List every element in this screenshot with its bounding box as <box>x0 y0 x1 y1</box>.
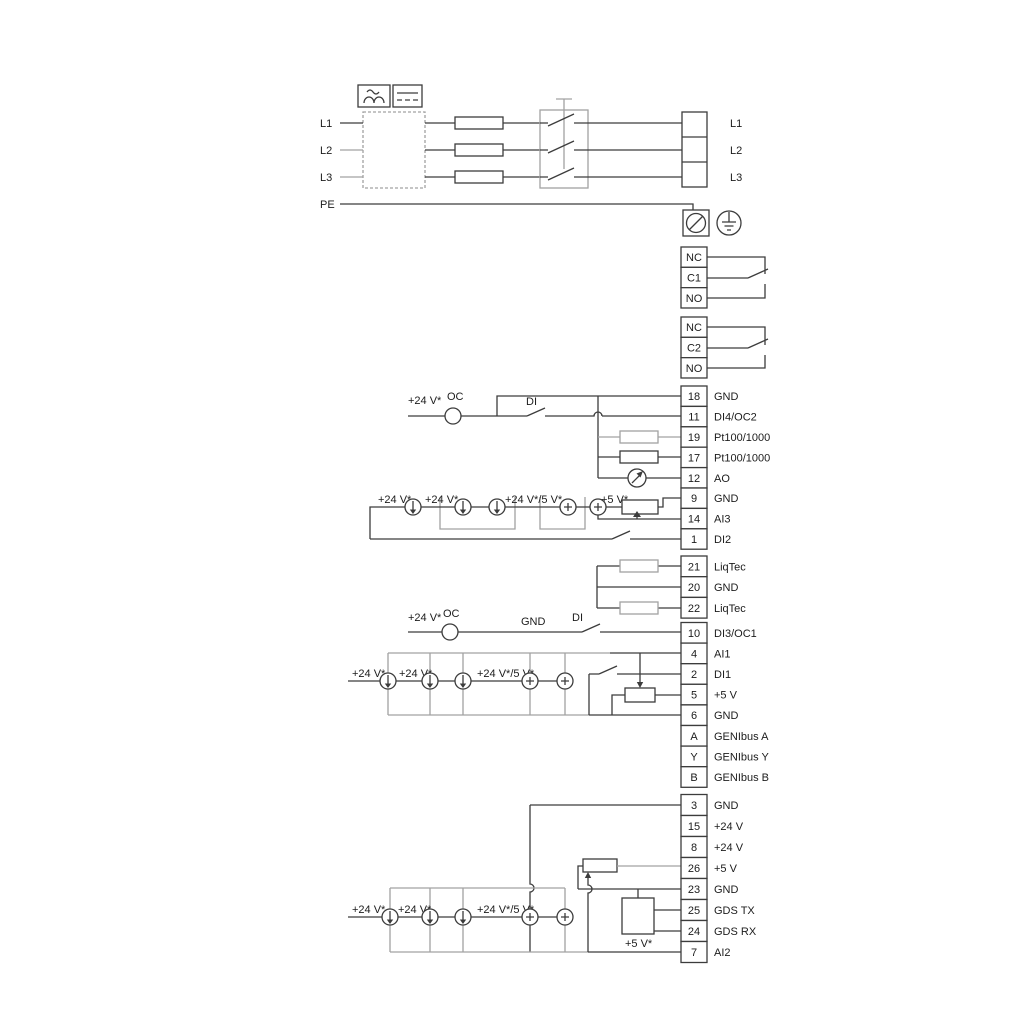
terminal-14: 14AI3 <box>681 508 731 528</box>
current-source-icon <box>422 909 438 925</box>
terminal-15-label: +24 V <box>714 821 744 833</box>
power-section: L1 L2 L3 PE <box>320 85 742 236</box>
terminal-19-label: Pt100/1000 <box>714 432 770 444</box>
terminal-2: 2DI1 <box>681 664 731 685</box>
ground-icon <box>717 211 741 235</box>
current-source-icon <box>405 499 421 515</box>
terminal-10: 10DI3/OC1 <box>681 623 757 644</box>
open-collector-label: OC <box>447 391 464 403</box>
terminal-21-label: LiqTec <box>714 561 746 573</box>
terminal-23: 23GND <box>681 879 739 900</box>
terminal-18: 18GND <box>681 386 739 406</box>
io-terminal-block-3: 3GND15+24 V8+24 V26+5 V23GND25GDS TX24GD… <box>681 795 757 963</box>
terminal-19-number: 19 <box>688 432 700 444</box>
main-disconnect-switch <box>540 99 588 188</box>
plus24v-label: +24 V* <box>425 494 459 506</box>
io-terminal-block-2: 10DI3/OC14AI12DI15+5 V6GNDAGENIbus AYGEN… <box>681 623 769 788</box>
terminal-NC: NC <box>681 247 707 267</box>
terminal-18-label: GND <box>714 391 739 403</box>
terminal-A: AGENIbus A <box>681 726 769 747</box>
terminal-17: 17Pt100/1000 <box>681 447 770 467</box>
terminal-23-label: GND <box>714 884 739 896</box>
terminal-14-number: 14 <box>688 514 700 526</box>
terminal-A-label: GENIbus A <box>714 731 769 743</box>
voltage-source-icon <box>560 499 576 515</box>
plus5v-label: +5 V* <box>625 938 653 950</box>
voltage-source-icon <box>590 499 606 515</box>
io3-wiring: +24 V* +24 V* +24 V*/5 V* +5 V* <box>348 805 681 952</box>
terminal-15-number: 15 <box>688 821 700 833</box>
terminal-23-number: 23 <box>688 884 700 896</box>
phase-l1-out-label: L1 <box>730 118 742 130</box>
terminal-18-number: 18 <box>688 391 700 403</box>
terminal-12-number: 12 <box>688 473 700 485</box>
mains-output-terminal-block: L1 L2 L3 <box>682 112 742 187</box>
terminal-NO-number: NO <box>686 363 703 375</box>
terminal-3-number: 3 <box>691 800 697 812</box>
terminal-11-label: DI4/OC2 <box>714 412 757 424</box>
wiper-arrow-icon <box>585 872 591 878</box>
relay1-terminal-block: NCC1NO <box>681 247 707 308</box>
io2-wiring: +24 V* OC GND DI +24 V* +24 V* +24 V*/5 … <box>348 608 681 715</box>
terminal-7-number: 7 <box>691 947 697 959</box>
terminal-10-label: DI3/OC1 <box>714 628 757 640</box>
phase-l1-in-label: L1 <box>320 118 332 130</box>
terminal-21: 21LiqTec <box>681 556 746 577</box>
rcd-dc-icon <box>393 85 422 107</box>
current-source-icon <box>489 499 505 515</box>
terminal-2-label: DI1 <box>714 669 731 681</box>
terminal-2-number: 2 <box>691 669 697 681</box>
terminal-B: BGENIbus B <box>681 767 769 788</box>
current-source-icon <box>455 673 471 689</box>
terminal-9-label: GND <box>714 493 739 505</box>
io-terminal-block-1: 18GND11DI4/OC219Pt100/100017Pt100/100012… <box>681 386 770 549</box>
pe-terminal-icon <box>683 210 709 236</box>
terminal-6-label: GND <box>714 710 739 722</box>
terminal-C1-number: C1 <box>687 272 701 284</box>
wiring-diagram-page: L1 L2 L3 PE <box>0 0 1024 1024</box>
digital-input-label: DI <box>572 612 583 624</box>
terminal-17-label: Pt100/1000 <box>714 452 770 464</box>
terminal-8-label: +24 V <box>714 842 744 854</box>
rcd-ac-icon <box>358 85 390 107</box>
terminal-C2-number: C2 <box>687 342 701 354</box>
terminal-4-number: 4 <box>691 648 697 660</box>
terminal-Y: YGENIbus Y <box>681 746 769 767</box>
fuse-icon <box>455 117 503 129</box>
relay2-terminal-block: NCC2NO <box>681 317 707 378</box>
terminal-25-label: GDS TX <box>714 905 755 917</box>
plus24v-5v-label: +24 V*/5 V* <box>505 494 563 506</box>
input-filter-box <box>363 112 425 188</box>
potentiometer-icon <box>583 859 617 872</box>
current-source-icon <box>422 673 438 689</box>
resistor-icon <box>620 560 658 572</box>
terminal-C2: C2 <box>681 337 707 357</box>
terminal-22-label: LiqTec <box>714 603 746 615</box>
plus24v-label: +24 V* <box>352 904 386 916</box>
terminal-9: 9GND <box>681 488 739 508</box>
plus24v-label: +24 V* <box>408 612 442 624</box>
relay1-contact-icon <box>707 257 768 298</box>
terminal-NC-number: NC <box>686 252 702 264</box>
pe-label: PE <box>320 199 335 211</box>
terminal-5: 5+5 V <box>681 684 738 705</box>
gds-sensor-box <box>622 898 654 934</box>
open-collector-label: OC <box>443 608 460 620</box>
potentiometer-icon <box>625 688 655 702</box>
analog-output-meter-icon <box>628 469 646 487</box>
terminal-10-number: 10 <box>688 628 700 640</box>
terminal-12-label: AO <box>714 473 730 485</box>
fuse-icon <box>455 171 503 183</box>
voltage-source-icon <box>557 909 573 925</box>
terminal-26: 26+5 V <box>681 858 738 879</box>
terminal-1-label: DI2 <box>714 534 731 546</box>
terminal-26-label: +5 V <box>714 863 738 875</box>
terminal-14-label: AI3 <box>714 514 731 526</box>
terminal-20: 20GND <box>681 577 739 598</box>
terminal-1: 1DI2 <box>681 529 731 549</box>
terminal-19: 19Pt100/1000 <box>681 427 770 447</box>
terminal-24-label: GDS RX <box>714 926 757 938</box>
terminal-26-number: 26 <box>688 863 700 875</box>
terminal-8: 8+24 V <box>681 837 744 858</box>
terminal-7-label: AI2 <box>714 947 731 959</box>
terminal-15: 15+24 V <box>681 816 744 837</box>
terminal-3: 3GND <box>681 795 739 816</box>
voltage-source-icon <box>522 909 538 925</box>
relay2-contact-icon <box>707 327 768 368</box>
wiper-arrow-icon <box>637 682 643 688</box>
terminal-C1: C1 <box>681 267 707 287</box>
terminal-NO-number: NO <box>686 293 703 305</box>
potentiometer-icon <box>622 500 658 514</box>
io1-wiring: +24 V* OC DI <box>408 391 681 487</box>
terminal-25: 25GDS TX <box>681 900 755 921</box>
terminal-NC-number: NC <box>686 322 702 334</box>
open-collector-icon <box>445 408 461 424</box>
fuse-icon <box>455 144 503 156</box>
resistor-icon <box>620 431 658 443</box>
io1-sources: +24 V* +24 V* +24 V*/5 V* +5 V* <box>370 494 681 539</box>
liqtec-terminal-block: 21LiqTec20GND22LiqTec <box>681 556 746 618</box>
terminal-7: 7AI2 <box>681 942 731 963</box>
current-source-icon <box>382 909 398 925</box>
wiring-diagram: L1 L2 L3 PE <box>0 0 1024 1024</box>
resistor-icon <box>620 451 658 463</box>
terminal-4-label: AI1 <box>714 648 731 660</box>
terminal-Y-number: Y <box>690 751 698 763</box>
terminal-20-number: 20 <box>688 582 700 594</box>
terminal-NO: NO <box>681 288 707 308</box>
liqtec-wiring <box>597 560 681 614</box>
terminal-3-label: GND <box>714 800 739 812</box>
plus24v-label: +24 V* <box>408 395 442 407</box>
current-source-icon <box>455 909 471 925</box>
terminal-22-number: 22 <box>688 603 700 615</box>
terminal-8-number: 8 <box>691 842 697 854</box>
terminal-NC: NC <box>681 317 707 337</box>
terminal-1-number: 1 <box>691 534 697 546</box>
voltage-source-icon <box>522 673 538 689</box>
terminal-A-number: A <box>690 731 698 743</box>
resistor-icon <box>620 602 658 614</box>
terminal-9-number: 9 <box>691 493 697 505</box>
terminal-NO: NO <box>681 358 707 378</box>
gnd-label: GND <box>521 616 546 628</box>
terminal-11: 11DI4/OC2 <box>681 406 757 426</box>
terminal-17-number: 17 <box>688 452 700 464</box>
phase-l2-in-label: L2 <box>320 145 332 157</box>
terminal-B-label: GENIbus B <box>714 772 769 784</box>
terminal-24: 24GDS RX <box>681 921 757 942</box>
terminal-5-number: 5 <box>691 690 697 702</box>
fuses <box>455 117 503 183</box>
open-collector-icon <box>442 624 458 640</box>
terminal-12: 12AO <box>681 468 730 488</box>
current-source-icon <box>380 673 396 689</box>
digital-input-label: DI <box>526 396 537 408</box>
terminal-24-number: 24 <box>688 926 700 938</box>
current-source-icon <box>455 499 471 515</box>
terminal-B-number: B <box>690 772 697 784</box>
terminal-6: 6GND <box>681 705 739 726</box>
terminal-25-number: 25 <box>688 905 700 917</box>
terminal-20-label: GND <box>714 582 739 594</box>
terminal-4: 4AI1 <box>681 643 731 664</box>
voltage-source-icon <box>557 673 573 689</box>
terminal-6-number: 6 <box>691 710 697 722</box>
phase-l2-out-label: L2 <box>730 145 742 157</box>
phase-l3-out-label: L3 <box>730 172 742 184</box>
terminal-Y-label: GENIbus Y <box>714 751 769 763</box>
terminal-5-label: +5 V <box>714 690 738 702</box>
terminal-11-number: 11 <box>688 412 699 424</box>
phase-l3-in-label: L3 <box>320 172 332 184</box>
terminal-21-number: 21 <box>688 561 700 573</box>
terminal-22: 22LiqTec <box>681 597 746 618</box>
